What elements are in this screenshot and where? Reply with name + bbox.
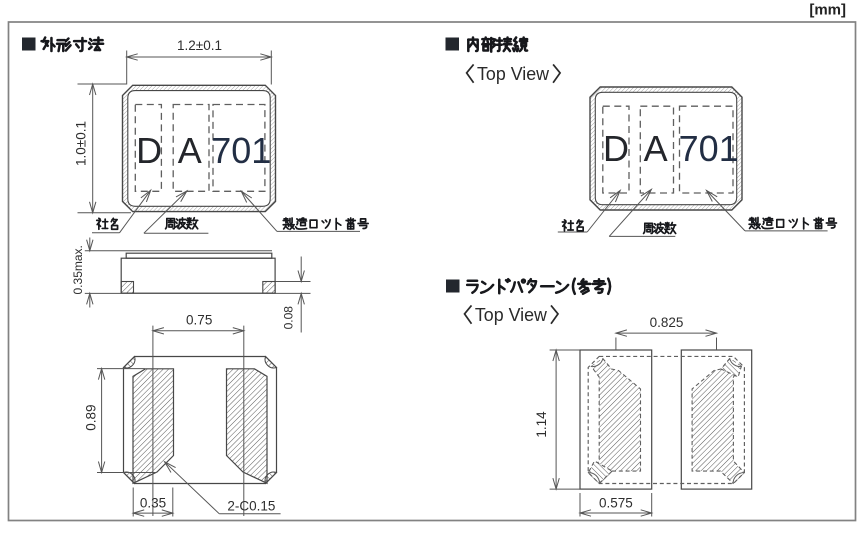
svg-text:1.0±0.1: 1.0±0.1 [74,121,89,166]
svg-text:0.35max.: 0.35max. [71,245,85,294]
svg-text:0.89: 0.89 [84,404,99,430]
svg-text:A: A [644,128,668,169]
svg-text:Top View: Top View [475,304,548,325]
svg-text:Top View: Top View [477,63,550,84]
svg-text:2-C0.15: 2-C0.15 [227,499,275,514]
svg-text:0.575: 0.575 [599,495,633,510]
svg-text:0.825: 0.825 [650,315,684,330]
svg-text:0.08: 0.08 [282,306,296,330]
svg-text:D: D [603,128,629,169]
svg-text:A: A [178,130,202,171]
svg-text:1.14: 1.14 [534,411,549,438]
svg-text:0.35: 0.35 [140,496,166,511]
svg-text:0.75: 0.75 [186,313,212,328]
svg-text:1.2±0.1: 1.2±0.1 [177,38,222,53]
svg-text:D: D [136,130,162,171]
svg-text:701: 701 [679,128,739,169]
svg-text:[mm]: [mm] [809,2,846,19]
svg-text:701: 701 [211,130,271,171]
